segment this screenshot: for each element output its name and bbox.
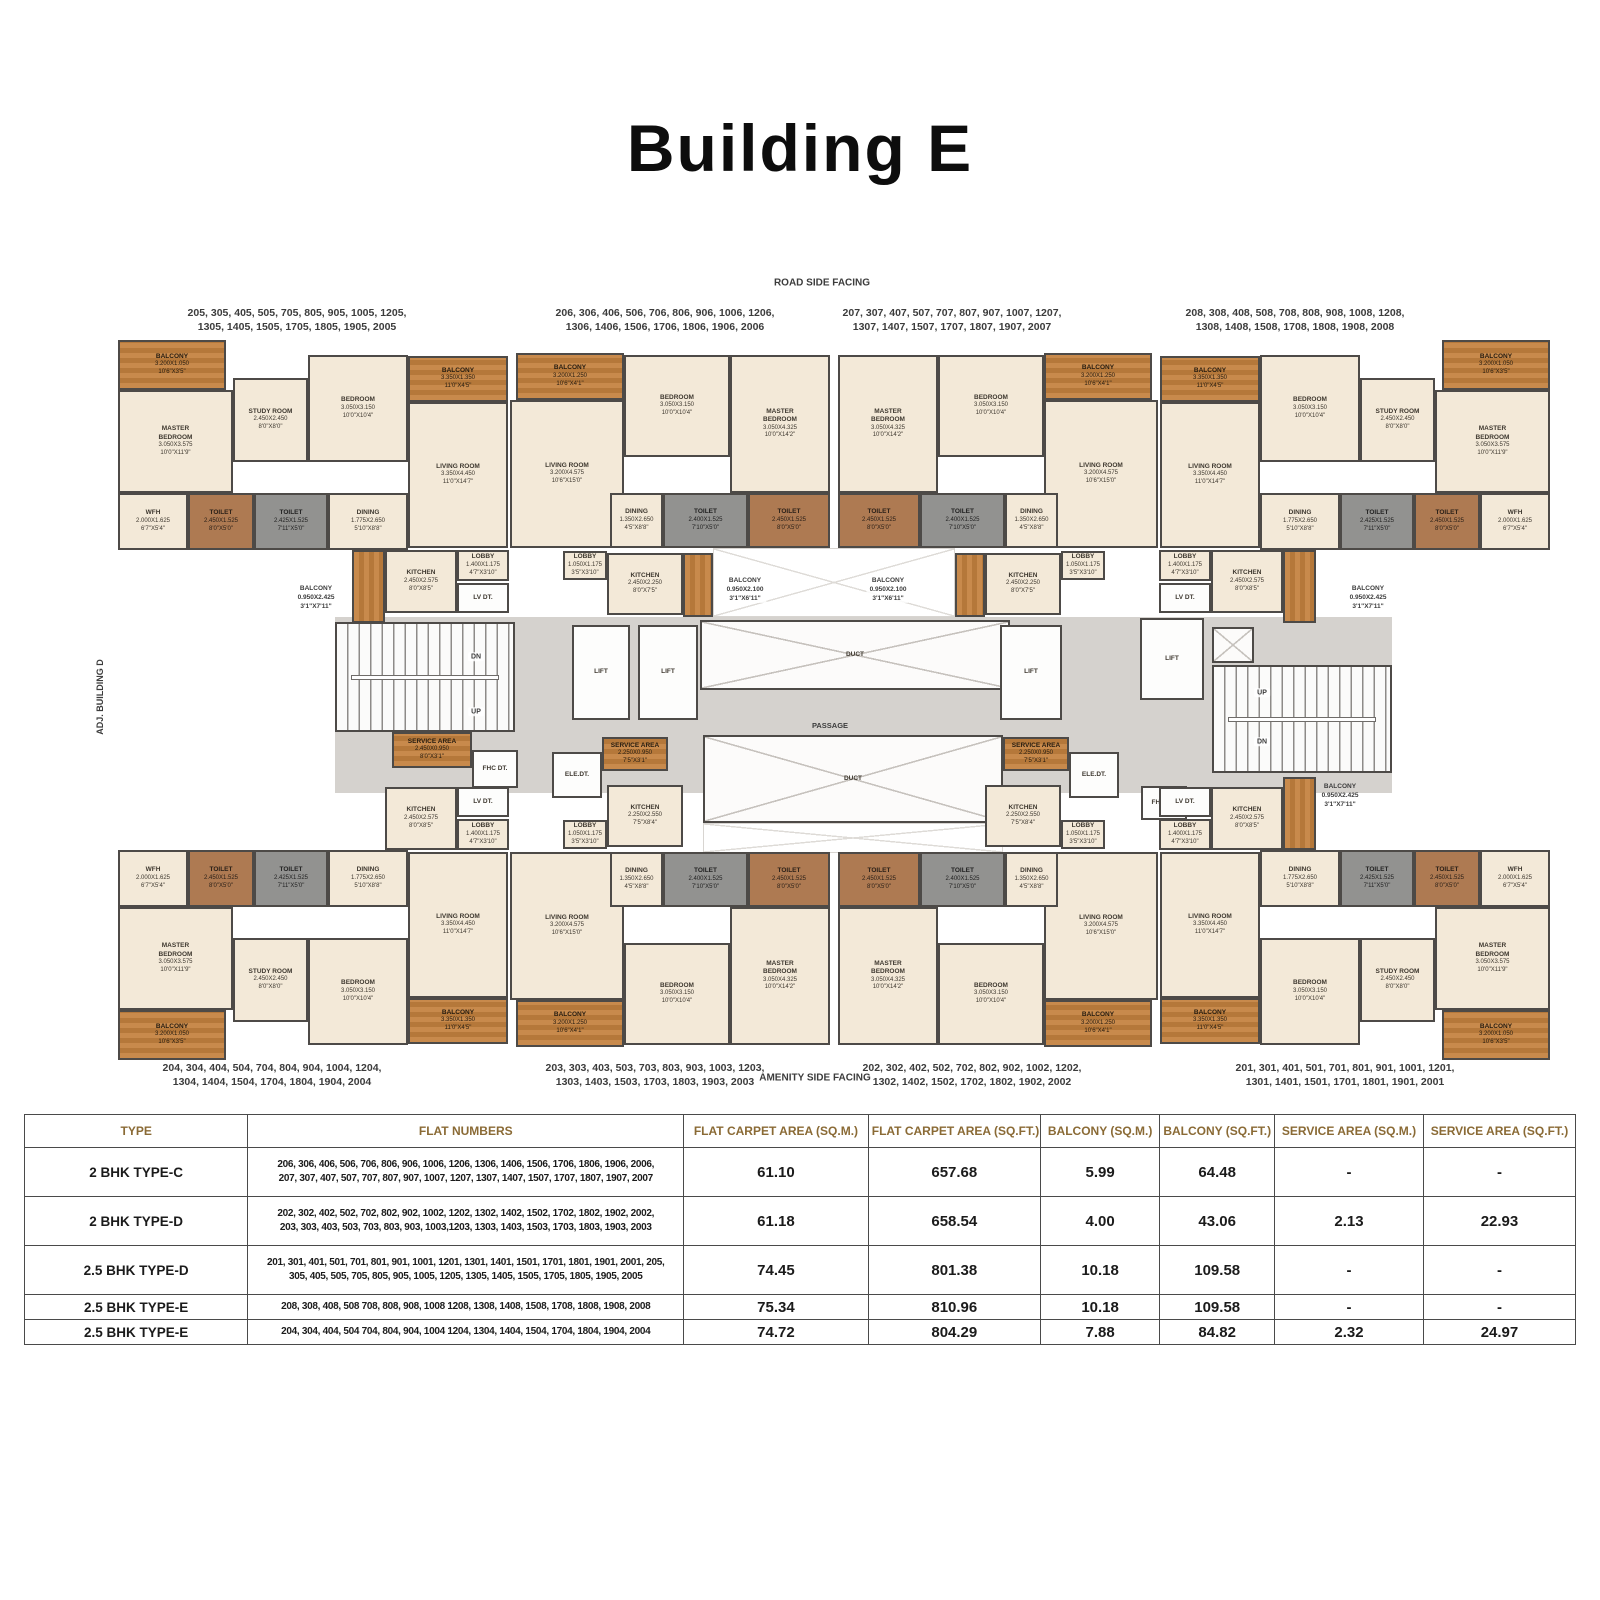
unit-top-left-205-master-bedroom: MASTERBEDROOM3.050X3.57510'0"X11'9" <box>118 390 233 493</box>
carpet-sqft-cell: 801.38 <box>868 1246 1040 1295</box>
service-sqm-cell: - <box>1275 1148 1424 1197</box>
unit-top-right-208-balcony-3 <box>1283 550 1316 623</box>
balcony-sqm-cell: 7.88 <box>1040 1320 1159 1345</box>
unit-top-midleft-206-lobby: LOBBY1.050X1.1753'5"X3'10" <box>563 551 607 580</box>
unit-bottom-midright-202-balcony: BALCONY3.200X1.25010'6"X4'1" <box>1044 1000 1152 1047</box>
unit-top-left-205-bedroom: BEDROOM3.050X3.15010'0"X10'4" <box>308 355 408 462</box>
unit-bottom-midleft-203-dining: DINING1.350X2.6504'5"X8'8" <box>610 852 663 907</box>
flat-numbers-cell: 202, 302, 402, 502, 702, 802, 902, 1002,… <box>248 1197 684 1246</box>
balcony-sqft-cell: 109.58 <box>1160 1295 1275 1320</box>
unit-top-right-208-toilet-2: TOILET2.425X1.5257'11"X5'0" <box>1340 493 1414 550</box>
service-sqft-cell: 22.93 <box>1423 1197 1575 1246</box>
duct-top: DUCT <box>700 620 1010 690</box>
unit-top-right-208-toilet-1: TOILET2.450X1.5258'0"X5'0" <box>1414 493 1480 550</box>
floor-plan: SERVICE AREA2.450X0.9508'0"X3'1"FHC DT.L… <box>0 0 1600 1600</box>
balcony-sqft-cell: 43.06 <box>1160 1197 1275 1246</box>
unit-bottom-left-204-dining: DINING1.775X2.6505'10"X8'8" <box>328 850 408 907</box>
carpet-sqm-cell: 61.18 <box>684 1197 869 1246</box>
unit-top-midright-207-lobby: LOBBY1.050X1.1753'5"X3'10" <box>1061 551 1105 580</box>
service-sqft-cell: - <box>1423 1295 1575 1320</box>
unit-bottom-left-204-toilet-1: TOILET2.450X1.5258'0"X5'0" <box>188 850 254 907</box>
balcony-note-center-left: BALCONY0.950X2.1003'1"X6'11" <box>724 577 767 603</box>
flat-numbers-cell: 206, 306, 406, 506, 706, 806, 906, 1006,… <box>248 1148 684 1197</box>
unit-top-right-208-dining: DINING1.775X2.6505'10"X8'8" <box>1260 493 1340 550</box>
unit-top-left-205-kitchen: KITCHEN2.450X2.5758'0"X8'5" <box>385 550 457 613</box>
unit-top-midleft-206-bedroom: BEDROOM3.050X3.15010'0"X10'4" <box>624 355 730 457</box>
unit-bottom-midleft-203-lobby: LOBBY1.050X1.1753'5"X3'10" <box>563 820 607 849</box>
column-header-5: BALCONY (SQ.FT.) <box>1160 1115 1275 1148</box>
unit-top-right-208-living-room: LIVING ROOM3.350X4.45011'0"X14'7" <box>1160 402 1260 548</box>
unit-bottom-midright-202-toilet-2: TOILET2.450X1.5258'0"X5'0" <box>838 852 920 907</box>
amenity-side-label: AMENITY SIDE FACING <box>759 1071 871 1085</box>
unit-bottom-right-201-toilet-1: TOILET2.450X1.5258'0"X5'0" <box>1414 850 1480 907</box>
unit-top-midright-207-living-room: LIVING ROOM3.200X4.57510'6"X15'0" <box>1044 400 1158 548</box>
type-cell: 2.5 BHK TYPE-D <box>25 1246 248 1295</box>
unit-top-left-205-toilet-2: TOILET2.425X1.5257'11"X5'0" <box>254 493 328 550</box>
column-header-1: FLAT NUMBERS <box>248 1115 684 1148</box>
ele-dt-right: ELE.DT. <box>1069 752 1119 798</box>
unit-top-right-208-balcony-2: BALCONY3.350X1.35011'0"X4'5" <box>1160 356 1260 402</box>
unit-bottom-midright-202-lobby: LOBBY1.050X1.1753'5"X3'10" <box>1061 820 1105 849</box>
column-header-2: FLAT CARPET AREA (SQ.M.) <box>684 1115 869 1148</box>
type-cell: 2 BHK TYPE-C <box>25 1148 248 1197</box>
column-header-0: TYPE <box>25 1115 248 1148</box>
lift-2: LIFT <box>638 625 698 720</box>
unit-top-midleft-206-living-room: LIVING ROOM3.200X4.57510'6"X15'0" <box>510 400 624 548</box>
unit-bottom-midright-202-dining: DINING1.350X2.6504'5"X8'8" <box>1005 852 1058 907</box>
duct-bottom: DUCT <box>703 735 1003 823</box>
unit-bottom-right-201-study-room: STUDY ROOM2.450X2.4508'0"X8'0" <box>1360 938 1435 1022</box>
stair-right-dn-label: DN <box>1254 737 1270 746</box>
unit-top-left-205-wfh: WFH2.000X1.6256'7"X5'4" <box>118 493 188 550</box>
unit-top-left-205-balcony-3 <box>352 550 385 623</box>
unit-bottom-right-201-lv-dt: LV DT. <box>1159 787 1211 817</box>
fhc-dt-left: FHC DT. <box>472 750 518 788</box>
service-area-left: SERVICE AREA2.450X0.9508'0"X3'1" <box>392 732 472 768</box>
unit-top-midright-207-balcony-3 <box>955 553 985 617</box>
service-sqm-cell: 2.32 <box>1275 1320 1424 1345</box>
lift-3: LIFT <box>1000 625 1062 720</box>
flat-group-bottom-4: 201, 301, 401, 501, 701, 801, 901, 1001,… <box>1236 1061 1455 1089</box>
stair-right-up-label: UP <box>1254 688 1270 697</box>
unit-bottom-right-201-kitchen: KITCHEN2.450X2.5758'0"X8'5" <box>1211 787 1283 850</box>
unit-bottom-midright-202-bedroom: BEDROOM3.050X3.15010'0"X10'4" <box>938 943 1044 1045</box>
flat-group-bottom-1: 204, 304, 404, 504, 704, 804, 904, 1004,… <box>163 1061 382 1089</box>
unit-bottom-right-201-toilet-2: TOILET2.425X1.5257'11"X5'0" <box>1340 850 1414 907</box>
type-cell: 2 BHK TYPE-D <box>25 1197 248 1246</box>
unit-top-right-208-master-bedroom: MASTERBEDROOM3.050X3.57510'0"X11'9" <box>1435 390 1550 493</box>
unit-top-midright-207-master-bedroom: MASTERBEDROOM3.050X4.32510'0"X14'2" <box>838 355 938 493</box>
type-cell: 2.5 BHK TYPE-E <box>25 1295 248 1320</box>
unit-bottom-right-201-balcony: BALCONY3.200X1.05010'6"X3'5" <box>1442 1010 1550 1060</box>
table-row-1: 2 BHK TYPE-D202, 302, 402, 502, 702, 802… <box>25 1197 1576 1246</box>
unit-top-midright-207-toilet-2: TOILET2.450X1.5258'0"X5'0" <box>838 493 920 548</box>
ele-dt-left: ELE.DT. <box>552 752 602 798</box>
service-sqm-cell: - <box>1275 1295 1424 1320</box>
unit-bottom-right-201-master-bedroom: MASTERBEDROOM3.050X3.57510'0"X11'9" <box>1435 907 1550 1010</box>
unit-top-midright-207-balcony: BALCONY3.200X1.25010'6"X4'1" <box>1044 353 1152 400</box>
adj-building-label: ADJ. BUILDING D <box>94 659 106 735</box>
unit-top-left-205-study-room: STUDY ROOM2.450X2.4508'0"X8'0" <box>233 378 308 462</box>
unit-bottom-left-204-kitchen: KITCHEN2.450X2.5758'0"X8'5" <box>385 787 457 850</box>
unit-top-right-208-wfh: WFH2.000X1.6256'7"X5'4" <box>1480 493 1550 550</box>
flat-area-table: TYPEFLAT NUMBERSFLAT CARPET AREA (SQ.M.)… <box>24 1114 1576 1345</box>
unit-top-left-205-balcony-2: BALCONY3.350X1.35011'0"X4'5" <box>408 356 508 402</box>
unit-top-right-208-study-room: STUDY ROOM2.450X2.4508'0"X8'0" <box>1360 378 1435 462</box>
unit-bottom-left-204-bedroom: BEDROOM3.050X3.15010'0"X10'4" <box>308 938 408 1045</box>
column-header-3: FLAT CARPET AREA (SQ.FT.) <box>868 1115 1040 1148</box>
balcony-sqm-cell: 10.18 <box>1040 1295 1159 1320</box>
carpet-sqm-cell: 74.45 <box>684 1246 869 1295</box>
unit-top-midleft-206-toilet-2: TOILET2.450X1.5258'0"X5'0" <box>748 493 830 548</box>
unit-bottom-left-204-master-bedroom: MASTERBEDROOM3.050X3.57510'0"X11'9" <box>118 907 233 1010</box>
unit-top-left-205-dining: DINING1.775X2.6505'10"X8'8" <box>328 493 408 550</box>
balcony-sqm-cell: 5.99 <box>1040 1148 1159 1197</box>
column-header-6: SERVICE AREA (SQ.M.) <box>1275 1115 1424 1148</box>
unit-bottom-midleft-203-balcony: BALCONY3.200X1.25010'6"X4'1" <box>516 1000 624 1047</box>
flat-group-top-3: 207, 307, 407, 507, 707, 807, 907, 1007,… <box>843 306 1062 334</box>
carpet-sqm-cell: 74.72 <box>684 1320 869 1345</box>
carpet-sqft-cell: 657.68 <box>868 1148 1040 1197</box>
flat-group-top-1: 205, 305, 405, 505, 705, 805, 905, 1005,… <box>188 306 407 334</box>
lift-1: LIFT <box>572 625 630 720</box>
unit-top-right-208-kitchen: KITCHEN2.450X2.5758'0"X8'5" <box>1211 550 1283 613</box>
service-area-centerright: SERVICE AREA2.250X0.9507'5"X3'1" <box>1003 737 1069 771</box>
column-header-4: BALCONY (SQ.M.) <box>1040 1115 1159 1148</box>
unit-bottom-right-201-wfh: WFH2.000X1.6256'7"X5'4" <box>1480 850 1550 907</box>
unit-bottom-midleft-203-toilet-2: TOILET2.450X1.5258'0"X5'0" <box>748 852 830 907</box>
carpet-sqft-cell: 658.54 <box>868 1197 1040 1246</box>
balcony-sqft-cell: 64.48 <box>1160 1148 1275 1197</box>
flat-table-body: 2 BHK TYPE-C206, 306, 406, 506, 706, 806… <box>25 1148 1576 1345</box>
table-row-0: 2 BHK TYPE-C206, 306, 406, 506, 706, 806… <box>25 1148 1576 1197</box>
unit-bottom-right-201-balcony-2: BALCONY3.350X1.35011'0"X4'5" <box>1160 998 1260 1044</box>
service-sqft-cell: - <box>1423 1246 1575 1295</box>
unit-top-midleft-206-master-bedroom: MASTERBEDROOM3.050X4.32510'0"X14'2" <box>730 355 830 493</box>
stair-left-dn-label: DN <box>468 652 484 661</box>
unit-top-midright-207-toilet-1: TOILET2.400X1.5257'10"X5'0" <box>920 493 1005 548</box>
unit-bottom-midleft-203-toilet-1: TOILET2.400X1.5257'10"X5'0" <box>663 852 748 907</box>
unit-bottom-midright-202-master-bedroom: MASTERBEDROOM3.050X4.32510'0"X14'2" <box>838 907 938 1045</box>
carpet-sqm-cell: 61.10 <box>684 1148 869 1197</box>
unit-top-left-205-living-room: LIVING ROOM3.350X4.45011'0"X14'7" <box>408 402 508 548</box>
lift-4: LIFT <box>1140 618 1204 700</box>
unit-bottom-right-201-dining: DINING1.775X2.6505'10"X8'8" <box>1260 850 1340 907</box>
flat-group-bottom-3: 202, 302, 402, 502, 702, 802, 902, 1002,… <box>863 1061 1082 1089</box>
unit-bottom-left-204-toilet-2: TOILET2.425X1.5257'11"X5'0" <box>254 850 328 907</box>
unit-top-left-205-toilet-1: TOILET2.450X1.5258'0"X5'0" <box>188 493 254 550</box>
service-sqft-cell: 24.97 <box>1423 1320 1575 1345</box>
stair-left <box>335 622 515 732</box>
unit-top-midright-207-bedroom: BEDROOM3.050X3.15010'0"X10'4" <box>938 355 1044 457</box>
table-header-row: TYPEFLAT NUMBERSFLAT CARPET AREA (SQ.M.)… <box>25 1115 1576 1148</box>
balcony-sqft-cell: 84.82 <box>1160 1320 1275 1345</box>
unit-top-midleft-206-toilet-1: TOILET2.400X1.5257'10"X5'0" <box>663 493 748 548</box>
unit-bottom-midleft-203-kitchen: KITCHEN2.250X2.5507'5"X8'4" <box>607 785 683 847</box>
flat-numbers-cell: 204, 304, 404, 504 704, 804, 904, 1004 1… <box>248 1320 684 1345</box>
unit-bottom-right-201-bedroom: BEDROOM3.050X3.15010'0"X10'4" <box>1260 938 1360 1045</box>
stair-right <box>1212 665 1392 773</box>
table-row-3: 2.5 BHK TYPE-E208, 308, 408, 508 708, 80… <box>25 1295 1576 1320</box>
road-side-label: ROAD SIDE FACING <box>774 276 870 290</box>
service-area-centerleft: SERVICE AREA2.250X0.9507'5"X3'1" <box>602 737 668 771</box>
service-sqft-cell: - <box>1423 1148 1575 1197</box>
unit-bottom-left-204-balcony-2: BALCONY3.350X1.35011'0"X4'5" <box>408 998 508 1044</box>
unit-bottom-left-204-lobby: LOBBY1.400X1.1754'7"X3'10" <box>457 819 509 850</box>
balcony-note-top-left: BALCONY0.950X2.4253'1"X7'11" <box>298 585 335 611</box>
stair-left-up-label: UP <box>468 707 484 716</box>
unit-bottom-left-204-living-room: LIVING ROOM3.350X4.45011'0"X14'7" <box>408 852 508 998</box>
unit-top-midleft-206-dining: DINING1.350X2.6504'5"X8'8" <box>610 493 663 548</box>
unit-bottom-left-204-wfh: WFH2.000X1.6256'7"X5'4" <box>118 850 188 907</box>
carpet-sqft-cell: 810.96 <box>868 1295 1040 1320</box>
flat-numbers-cell: 208, 308, 408, 508 708, 808, 908, 1008 1… <box>248 1295 684 1320</box>
unit-bottom-left-204-study-room: STUDY ROOM2.450X2.4508'0"X8'0" <box>233 938 308 1022</box>
balcony-sqft-cell: 109.58 <box>1160 1246 1275 1295</box>
unit-top-midleft-206-balcony-3 <box>683 553 713 617</box>
table-row-4: 2.5 BHK TYPE-E204, 304, 404, 504 704, 80… <box>25 1320 1576 1345</box>
balcony-note-bottom-right: BALCONY0.950X2.4253'1"X7'11" <box>1322 783 1359 809</box>
unit-bottom-left-204-lv-dt: LV DT. <box>457 787 509 817</box>
flat-group-top-2: 206, 306, 406, 506, 706, 806, 906, 1006,… <box>556 306 775 334</box>
unit-bottom-midleft-203-living-room: LIVING ROOM3.200X4.57510'6"X15'0" <box>510 852 624 1000</box>
carpet-sqft-cell: 804.29 <box>868 1320 1040 1345</box>
balcony-sqm-cell: 10.18 <box>1040 1246 1159 1295</box>
flat-numbers-cell: 201, 301, 401, 501, 701, 801, 901, 1001,… <box>248 1246 684 1295</box>
unit-top-left-205-lv-dt: LV DT. <box>457 583 509 613</box>
hatch-bottom <box>703 823 1003 853</box>
unit-bottom-midleft-203-bedroom: BEDROOM3.050X3.15010'0"X10'4" <box>624 943 730 1045</box>
type-cell: 2.5 BHK TYPE-E <box>25 1320 248 1345</box>
duct-small <box>1212 627 1254 663</box>
balcony-note-center-right: BALCONY0.950X2.1003'1"X6'11" <box>867 577 910 603</box>
unit-top-right-208-balcony: BALCONY3.200X1.05010'6"X3'5" <box>1442 340 1550 390</box>
flat-group-bottom-2: 203, 303, 403, 503, 703, 803, 903, 1003,… <box>546 1061 765 1089</box>
unit-top-left-205-lobby: LOBBY1.400X1.1754'7"X3'10" <box>457 550 509 581</box>
unit-bottom-right-201-lobby: LOBBY1.400X1.1754'7"X3'10" <box>1159 819 1211 850</box>
carpet-sqm-cell: 75.34 <box>684 1295 869 1320</box>
unit-top-midright-207-dining: DINING1.350X2.6504'5"X8'8" <box>1005 493 1058 548</box>
balcony-note-top-right: BALCONY0.950X2.4253'1"X7'11" <box>1350 585 1387 611</box>
unit-bottom-midright-202-living-room: LIVING ROOM3.200X4.57510'6"X15'0" <box>1044 852 1158 1000</box>
unit-bottom-right-201-balcony-3 <box>1283 777 1316 850</box>
flat-group-top-4: 208, 308, 408, 508, 708, 808, 908, 1008,… <box>1186 306 1405 334</box>
unit-top-midleft-206-balcony: BALCONY3.200X1.25010'6"X4'1" <box>516 353 624 400</box>
service-sqm-cell: 2.13 <box>1275 1197 1424 1246</box>
unit-top-right-208-bedroom: BEDROOM3.050X3.15010'0"X10'4" <box>1260 355 1360 462</box>
unit-bottom-midleft-203-master-bedroom: MASTERBEDROOM3.050X4.32510'0"X14'2" <box>730 907 830 1045</box>
unit-bottom-midright-202-kitchen: KITCHEN2.250X2.5507'5"X8'4" <box>985 785 1061 847</box>
column-header-7: SERVICE AREA (SQ.FT.) <box>1423 1115 1575 1148</box>
table-row-2: 2.5 BHK TYPE-D201, 301, 401, 501, 701, 8… <box>25 1246 1576 1295</box>
passage-label: PASSAGE <box>812 721 848 731</box>
unit-top-right-208-lobby: LOBBY1.400X1.1754'7"X3'10" <box>1159 550 1211 581</box>
balcony-sqm-cell: 4.00 <box>1040 1197 1159 1246</box>
unit-bottom-midright-202-toilet-1: TOILET2.400X1.5257'10"X5'0" <box>920 852 1005 907</box>
service-sqm-cell: - <box>1275 1246 1424 1295</box>
unit-bottom-right-201-living-room: LIVING ROOM3.350X4.45011'0"X14'7" <box>1160 852 1260 998</box>
unit-top-midleft-206-kitchen: KITCHEN2.450X2.2508'0"X7'5" <box>607 553 683 615</box>
unit-top-right-208-lv-dt: LV DT. <box>1159 583 1211 613</box>
unit-top-midright-207-kitchen: KITCHEN2.450X2.2508'0"X7'5" <box>985 553 1061 615</box>
unit-bottom-left-204-balcony: BALCONY3.200X1.05010'6"X3'5" <box>118 1010 226 1060</box>
unit-top-left-205-balcony: BALCONY3.200X1.05010'6"X3'5" <box>118 340 226 390</box>
